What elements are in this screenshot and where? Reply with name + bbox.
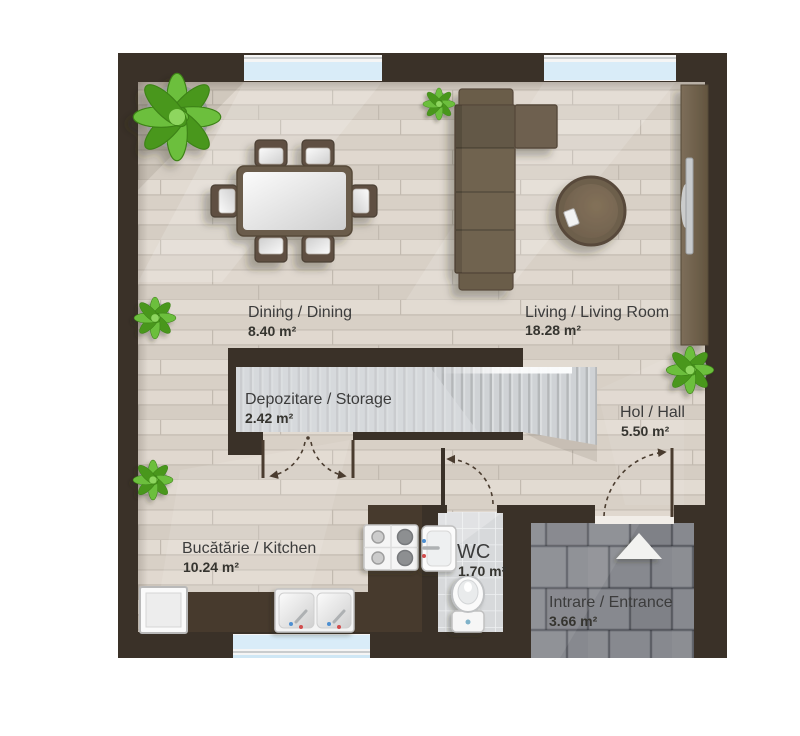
room-area-kitchen: 10.24 m² [183, 559, 239, 575]
entrance-threshold [595, 516, 674, 524]
dining-chair [351, 185, 377, 217]
dining-chair [302, 236, 334, 262]
room-area-living: 18.28 m² [525, 322, 581, 338]
room-area-wc: 1.70 m² [458, 563, 507, 579]
window-top-right [544, 55, 676, 81]
toilet [452, 576, 484, 632]
dining-chair [255, 140, 287, 166]
room-label-dining: Dining / Dining [248, 304, 352, 321]
floor-plan: Dining / Dining 8.40 m² Living / Living … [0, 0, 800, 736]
plant-large-palm [133, 73, 220, 160]
room-area-storage: 2.42 m² [245, 410, 294, 426]
fridge [140, 587, 187, 633]
room-label-storage: Depozitare / Storage [245, 391, 392, 408]
room-area-dining: 8.40 m² [248, 323, 297, 339]
room-area-hall: 5.50 m² [621, 423, 670, 439]
dining-chair [211, 185, 237, 217]
plant-hall-corner [666, 346, 714, 394]
room-label-wc: WC [457, 541, 490, 563]
tv-console [681, 85, 708, 345]
room-label-kitchen: Bucătărie / Kitchen [182, 540, 316, 557]
room-label-hall: Hol / Hall [620, 404, 685, 421]
plant-left-mid [134, 297, 176, 339]
stair-handrail [440, 367, 572, 374]
coffee-table [557, 177, 625, 245]
room-area-entrance: 3.66 m² [549, 613, 598, 629]
entrance-paving [531, 523, 694, 658]
dining-table [237, 166, 352, 236]
wc-sink [422, 526, 456, 571]
window-kitchen [233, 634, 370, 658]
cooktop [364, 525, 418, 570]
window-top-left [244, 55, 382, 81]
dining-chair [255, 236, 287, 262]
room-label-living: Living / Living Room [525, 304, 669, 321]
room-label-entrance: Intrare / Entrance [549, 594, 673, 611]
dining-chair [302, 140, 334, 166]
plant-left-low [133, 460, 173, 500]
double-sink [275, 589, 354, 632]
plant-sofa-bush [423, 88, 455, 120]
